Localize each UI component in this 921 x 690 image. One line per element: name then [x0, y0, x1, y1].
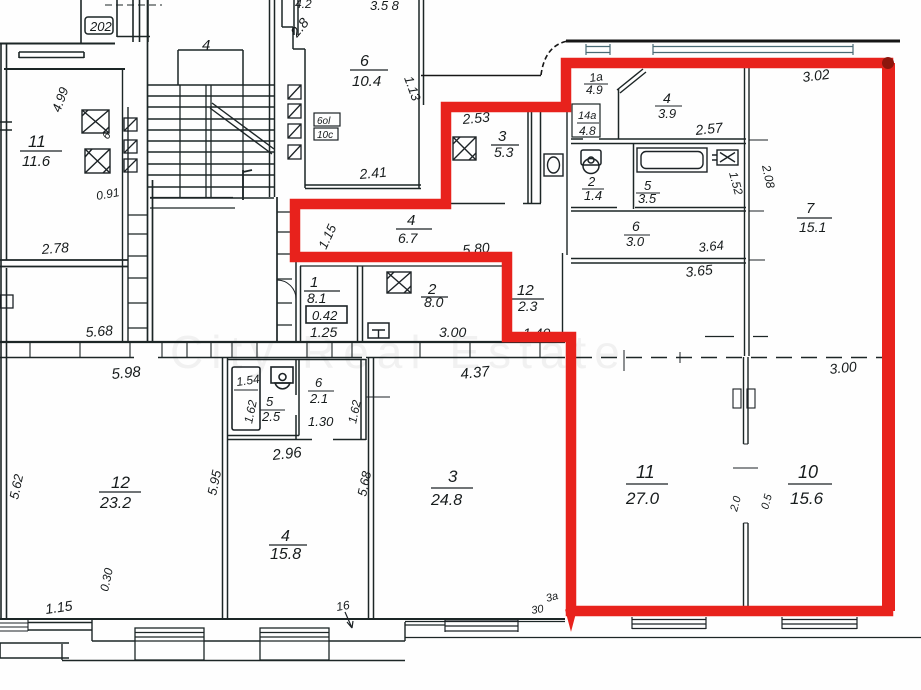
svg-text:6: 6: [632, 218, 640, 234]
svg-text:1.4: 1.4: [584, 188, 602, 203]
svg-text:16: 16: [335, 598, 351, 614]
svg-text:3.65: 3.65: [685, 261, 714, 280]
svg-text:2.5: 2.5: [261, 409, 281, 424]
svg-text:0.42: 0.42: [312, 308, 338, 323]
svg-text:10c: 10c: [317, 130, 333, 141]
svg-text:11: 11: [636, 462, 655, 482]
svg-text:2.78: 2.78: [40, 239, 70, 257]
svg-text:4: 4: [663, 90, 671, 106]
svg-text:6.7: 6.7: [398, 230, 419, 246]
svg-text:15.1: 15.1: [799, 219, 826, 235]
svg-text:3.02: 3.02: [801, 66, 830, 85]
svg-text:4: 4: [202, 37, 210, 54]
svg-text:7: 7: [806, 200, 815, 217]
svg-text:15.6: 15.6: [790, 489, 824, 508]
svg-text:4.37: 4.37: [460, 363, 491, 383]
svg-text:1.25: 1.25: [310, 324, 337, 340]
svg-text:27.0: 27.0: [625, 489, 660, 508]
svg-text:2.1: 2.1: [309, 391, 328, 406]
svg-text:8.1: 8.1: [307, 290, 326, 306]
svg-text:5.68: 5.68: [85, 322, 114, 340]
svg-text:23.2: 23.2: [99, 495, 131, 512]
svg-text:3.00: 3.00: [829, 358, 858, 377]
svg-text:10.4: 10.4: [352, 73, 381, 90]
svg-text:2.57: 2.57: [694, 119, 725, 138]
svg-text:3.0: 3.0: [626, 234, 645, 249]
svg-text:2.96: 2.96: [271, 444, 303, 464]
svg-text:11.6: 11.6: [22, 153, 51, 170]
svg-text:2: 2: [587, 174, 596, 189]
svg-text:1: 1: [310, 274, 318, 291]
svg-text:4: 4: [281, 528, 290, 545]
svg-text:1.30: 1.30: [308, 414, 334, 429]
svg-text:10: 10: [798, 462, 818, 482]
svg-text:4.9: 4.9: [586, 83, 603, 97]
svg-text:6ol: 6ol: [317, 116, 331, 127]
svg-text:4.8: 4.8: [579, 124, 596, 138]
svg-text:3.00: 3.00: [439, 324, 466, 340]
svg-text:202: 202: [89, 19, 112, 34]
svg-text:3: 3: [498, 128, 507, 145]
svg-text:3.5 8: 3.5 8: [370, 0, 400, 13]
svg-text:4.2: 4.2: [295, 0, 312, 11]
svg-text:5.98: 5.98: [111, 363, 142, 383]
svg-text:3.9: 3.9: [658, 106, 676, 121]
svg-text:4: 4: [407, 212, 415, 229]
svg-text:12: 12: [517, 282, 534, 299]
svg-text:5.3: 5.3: [494, 144, 514, 160]
svg-text:3: 3: [448, 467, 458, 486]
svg-text:2.3: 2.3: [517, 298, 538, 314]
svg-text:2.41: 2.41: [358, 164, 388, 182]
svg-text:15.8: 15.8: [270, 546, 301, 563]
svg-text:3.64: 3.64: [698, 237, 725, 255]
svg-text:5: 5: [266, 394, 274, 409]
svg-text:14a: 14a: [578, 110, 596, 122]
svg-text:12: 12: [111, 473, 130, 492]
svg-text:6: 6: [315, 375, 323, 390]
svg-text:11: 11: [28, 132, 46, 151]
svg-text:6: 6: [360, 53, 369, 70]
svg-text:24.8: 24.8: [430, 492, 462, 509]
